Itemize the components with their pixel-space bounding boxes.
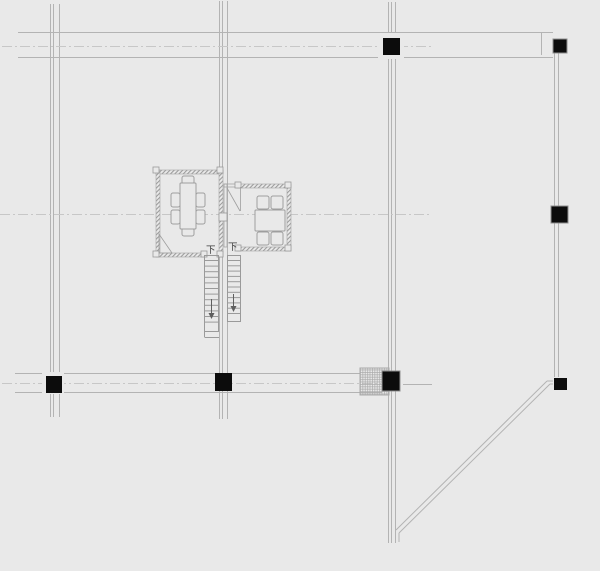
left-room-table bbox=[180, 183, 196, 229]
floor-plan-canvas: 下下 bbox=[0, 0, 600, 571]
column-right-middle bbox=[551, 206, 568, 223]
right-room-wall-top bbox=[237, 184, 291, 188]
wall-corner-marker bbox=[153, 167, 159, 173]
column-top-right bbox=[553, 39, 567, 53]
wall-corner-marker bbox=[217, 251, 223, 257]
right-room-chair-top1 bbox=[257, 196, 269, 209]
column-bottom-middle-left bbox=[215, 373, 232, 391]
left-room-chair-right2 bbox=[196, 210, 205, 224]
right-room-chair-top2 bbox=[271, 196, 283, 209]
column-bottom-right bbox=[554, 378, 567, 390]
right-room-door-swing bbox=[227, 188, 240, 211]
column-bottom-left bbox=[46, 376, 62, 393]
stair-down-label-left: 下 bbox=[206, 245, 216, 256]
right-room-wall-right bbox=[287, 184, 291, 251]
floor-plan-drawing: 下下 bbox=[0, 0, 600, 571]
left-room-chair-left1 bbox=[171, 193, 180, 207]
boundary-diagonal-inner bbox=[399, 384, 550, 533]
wall-corner-marker bbox=[285, 245, 291, 251]
boundary-diagonal-outer bbox=[396, 381, 547, 530]
wall-corner-marker bbox=[285, 182, 291, 188]
column-bottom-middle-right bbox=[382, 371, 400, 391]
room-junction-box bbox=[219, 213, 227, 221]
wall-corner-marker bbox=[217, 167, 223, 173]
right-room-chair-bottom1 bbox=[257, 232, 269, 245]
right-room-chair-bottom2 bbox=[271, 232, 283, 245]
column-top-middle bbox=[383, 38, 400, 55]
stair-down-label-right: 下 bbox=[228, 242, 238, 253]
left-room-wall-bottom bbox=[156, 253, 204, 257]
right-room-table bbox=[255, 210, 285, 231]
right-room-wall-bottom bbox=[237, 247, 291, 251]
left-room-door-swing bbox=[159, 234, 172, 253]
wall-corner-marker bbox=[153, 251, 159, 257]
left-room-chair-right1 bbox=[196, 193, 205, 207]
left-room-chair-left2 bbox=[171, 210, 180, 224]
left-room-wall-top bbox=[156, 170, 223, 174]
stair-right-direction-arrow-head bbox=[231, 306, 237, 312]
